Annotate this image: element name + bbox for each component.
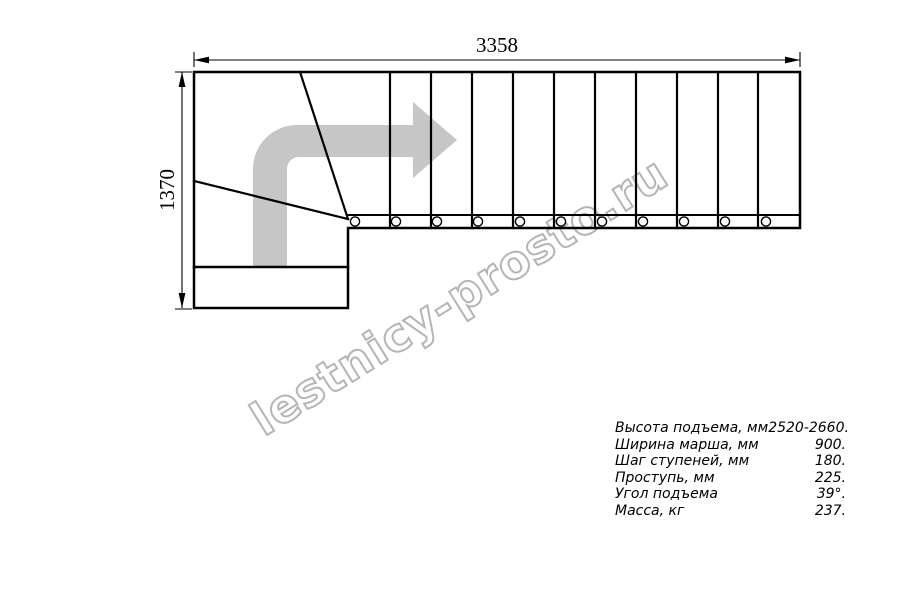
spec-value: 237.: [815, 503, 846, 520]
spec-label: Угол подъема: [615, 486, 718, 503]
spec-label: Проступь, мм: [615, 470, 715, 487]
spec-label: Высота подъема, мм: [615, 420, 768, 437]
dim-arrow-right-icon: [785, 57, 800, 64]
stair-plan-page: lestnicy-prosto.ru: [0, 0, 900, 600]
baluster-circles: [350, 217, 770, 226]
dim-arrow-down-icon: [179, 293, 186, 308]
spec-row-flight-width: Ширина марша, мм 900.: [615, 437, 846, 454]
watermark-text: lestnicy-prosto.ru: [241, 146, 677, 446]
specs-table: Высота подъема, мм 2520-2660. Ширина мар…: [615, 420, 846, 520]
spec-value: 2520-2660.: [768, 420, 849, 437]
spec-value: 180.: [815, 453, 846, 470]
height-dimension: 1370: [155, 72, 192, 309]
spec-row-mass: Масса, кг 237.: [615, 503, 846, 520]
spec-label: Масса, кг: [615, 503, 684, 520]
dim-arrow-up-icon: [179, 72, 186, 87]
spec-row-step-pitch: Шаг ступеней, мм 180.: [615, 453, 846, 470]
spec-row-rise-height: Высота подъема, мм 2520-2660.: [615, 420, 846, 437]
spec-label: Ширина марша, мм: [615, 437, 759, 454]
spec-value: 225.: [815, 470, 846, 487]
spec-value: 39°.: [817, 486, 846, 503]
spec-label: Шаг ступеней, мм: [615, 453, 749, 470]
spec-row-rise-angle: Угол подъема 39°.: [615, 486, 846, 503]
direction-arrow-icon: [253, 102, 457, 267]
spec-value: 900.: [815, 437, 846, 454]
width-dimension-label: 3358: [476, 33, 518, 57]
spec-row-tread: Проступь, мм 225.: [615, 470, 846, 487]
width-dimension: 3358: [194, 33, 800, 67]
watermark: lestnicy-prosto.ru: [241, 146, 677, 446]
height-dimension-label: 1370: [155, 169, 179, 211]
dim-arrow-left-icon: [194, 57, 209, 64]
